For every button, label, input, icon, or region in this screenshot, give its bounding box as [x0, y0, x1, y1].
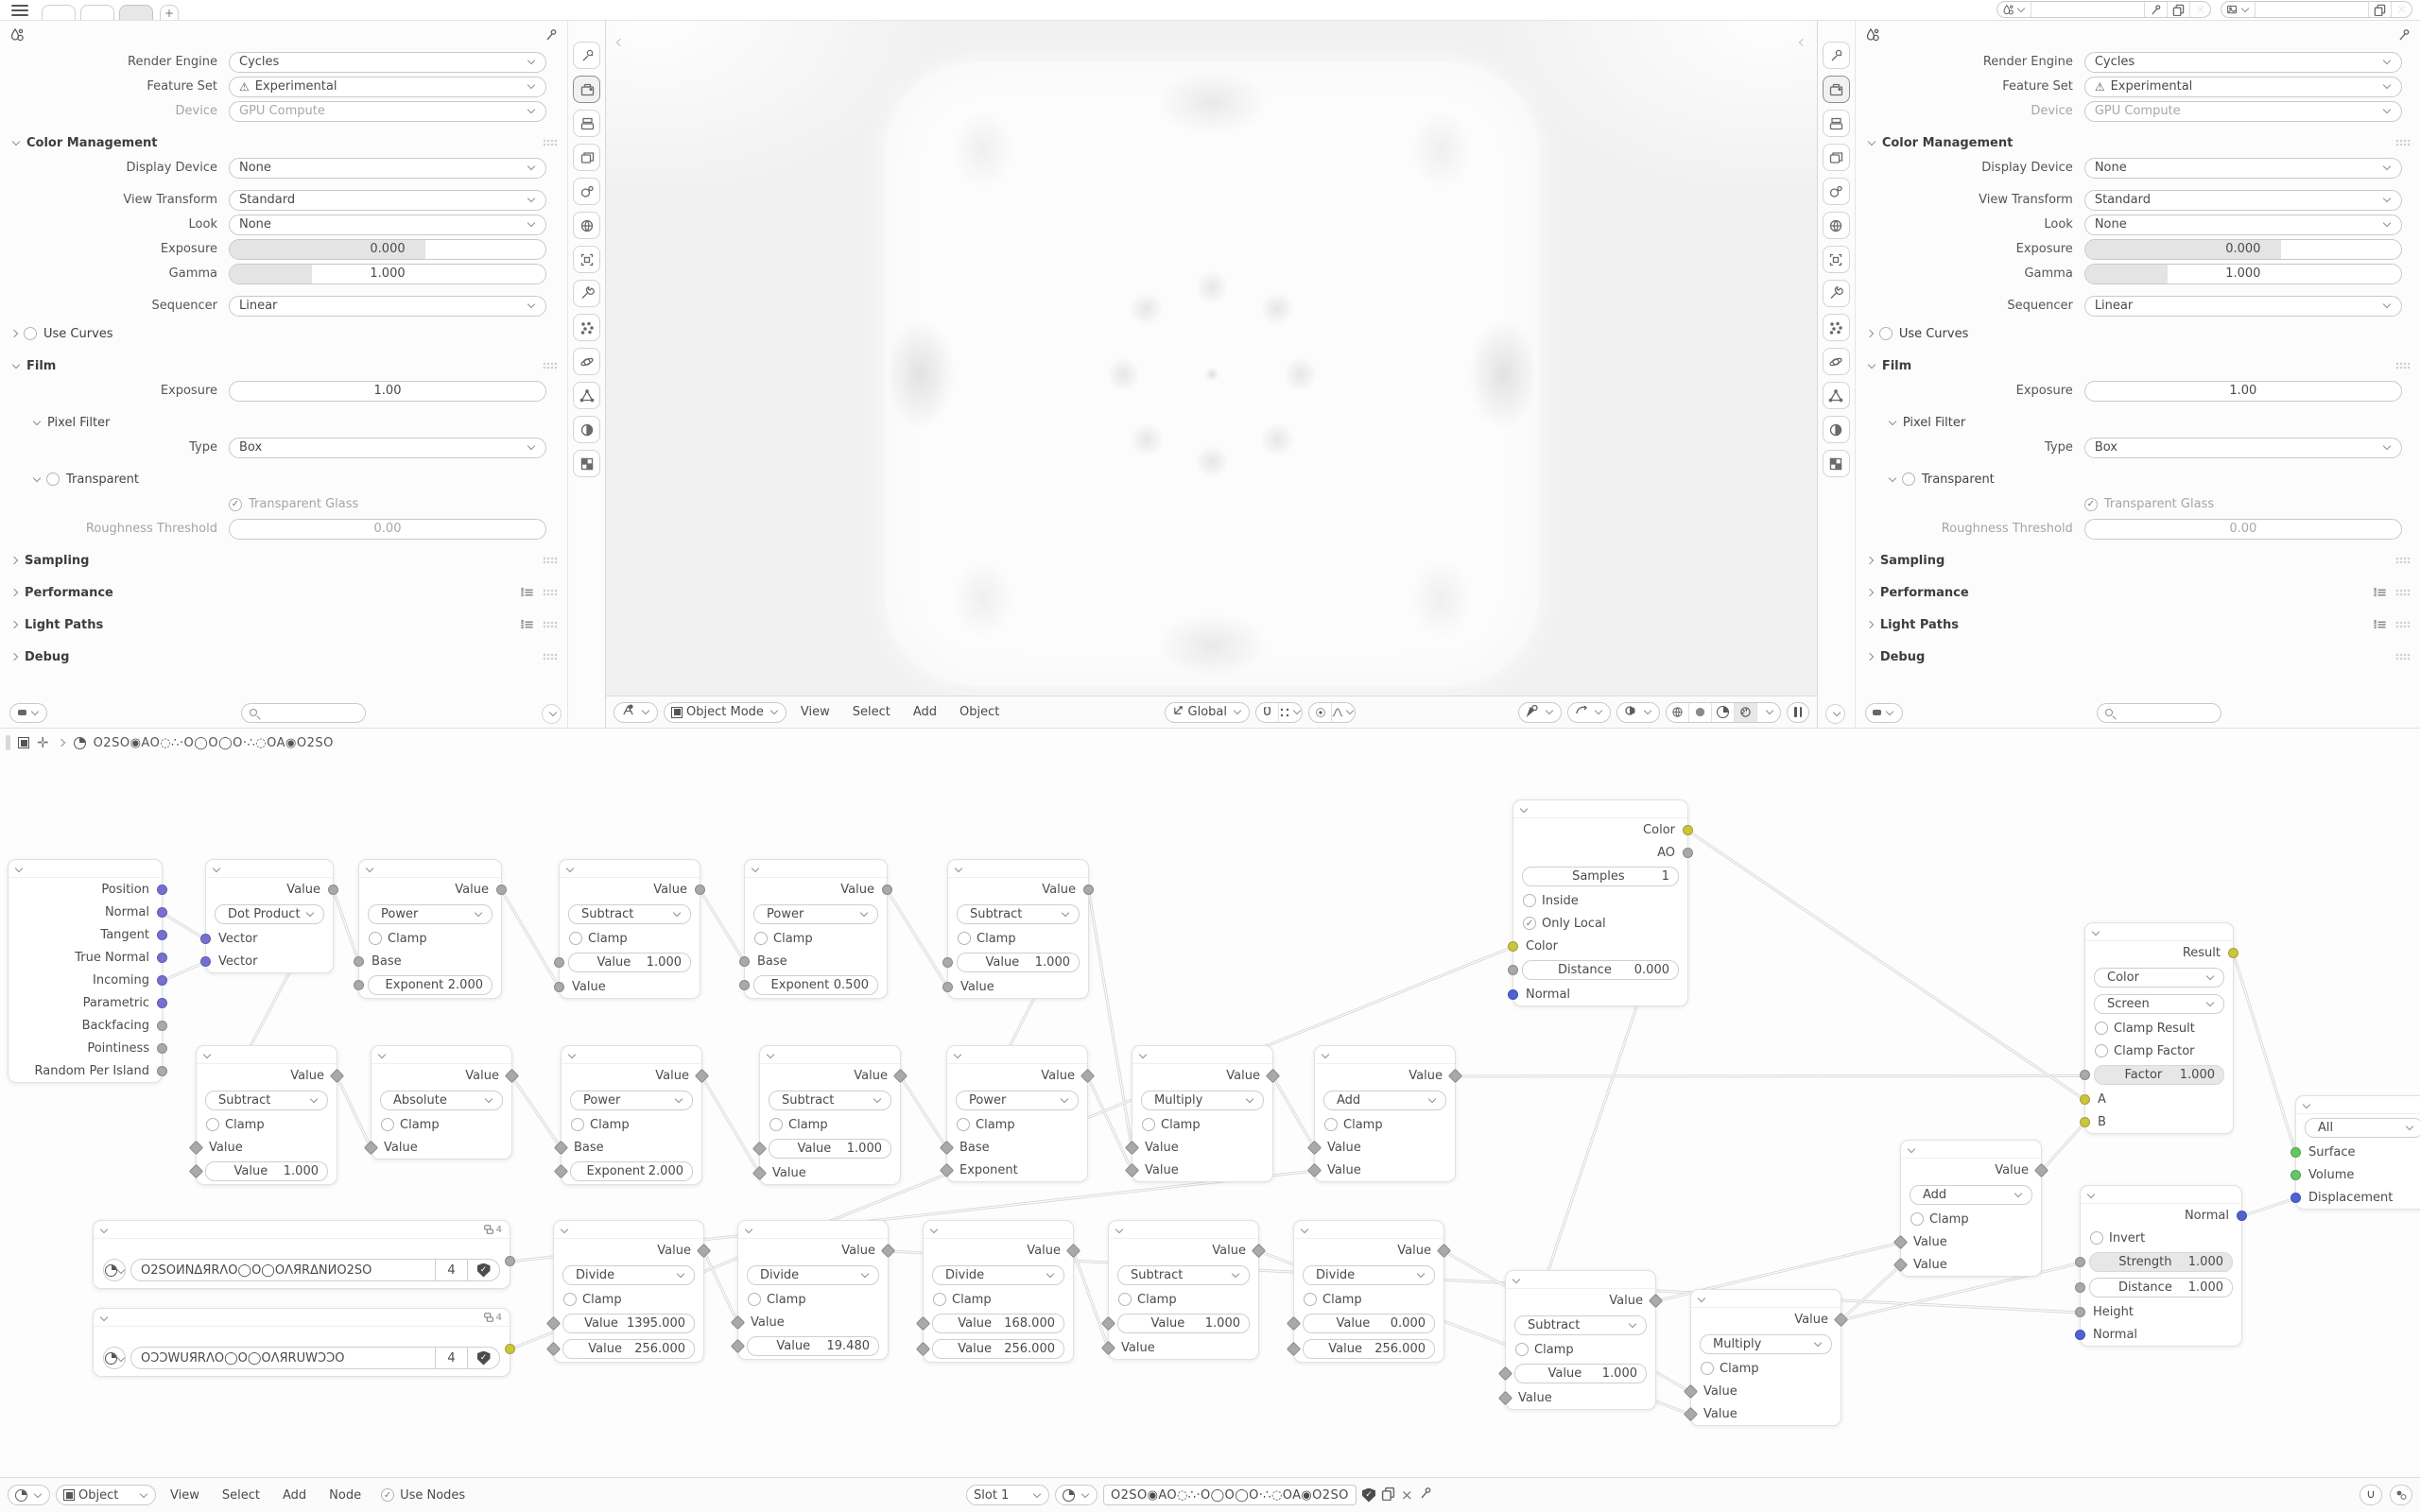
node-socket[interactable]	[697, 1243, 712, 1258]
node-socket[interactable]	[554, 982, 564, 992]
node-enum-select[interactable]: Divide	[1303, 1265, 1435, 1285]
use-curves-checkbox[interactable]	[1879, 327, 1893, 340]
pixel-filter-type-select[interactable]: Box	[229, 438, 546, 458]
node-socket[interactable]	[731, 1314, 746, 1330]
node-socket[interactable]	[1893, 1257, 1909, 1272]
proportional-dot-icon[interactable]	[1309, 703, 1332, 722]
node-socket[interactable]	[2290, 1193, 2301, 1203]
collapse-chevron-icon[interactable]	[2303, 1101, 2310, 1108]
checkbox[interactable]	[2095, 1044, 2108, 1057]
node-socket[interactable]	[739, 956, 750, 967]
properties-editor-icon[interactable]	[1865, 27, 1880, 46]
snapping-icon[interactable]	[2359, 1485, 2382, 1505]
node-enum-select[interactable]: Add	[1910, 1185, 2032, 1205]
expand-button[interactable]	[542, 704, 562, 724]
node-value-field[interactable]: Value168.000	[932, 1314, 1064, 1333]
node-socket[interactable]	[189, 1140, 204, 1155]
properties-tab-scene-icon[interactable]	[1823, 178, 1850, 205]
node-socket[interactable]	[1683, 848, 1693, 858]
sequencer-select[interactable]: Linear	[2084, 296, 2402, 317]
add-workspace-button[interactable]: +	[160, 5, 179, 20]
shader-node-div1[interactable]: ValueDivideClampValue1395.000Value256.00…	[553, 1220, 704, 1363]
node-enum-select[interactable]: Power	[570, 1091, 693, 1110]
shader-node-sub2[interactable]: ValueSubtractClampValue1.000Value	[947, 859, 1089, 999]
node-socket[interactable]	[1287, 1316, 1302, 1332]
node-value-field[interactable]: Value1.000	[1514, 1364, 1647, 1383]
datablock-name-input[interactable]	[2031, 2, 2145, 17]
node-socket[interactable]	[364, 1140, 379, 1155]
node-value-field[interactable]: Value0.000	[1303, 1314, 1435, 1333]
node-socket[interactable]	[1508, 965, 1518, 975]
section-pixel-filter[interactable]: Pixel Filter	[1876, 410, 2420, 435]
transparent-checkbox[interactable]	[1902, 472, 1915, 486]
transparent-glass-checkbox[interactable]	[229, 498, 242, 511]
collapse-chevron-icon[interactable]	[15, 865, 23, 872]
feature-set-select[interactable]: ⚠Experimental	[229, 77, 546, 97]
menu-select[interactable]: Select	[214, 1488, 268, 1503]
close-icon[interactable]: ×	[2392, 2, 2411, 17]
image-browse-button[interactable]	[103, 1259, 126, 1281]
section-performance[interactable]: Performance⁞≡	[1856, 580, 2420, 605]
properties-tab-tool-icon[interactable]	[1823, 42, 1850, 69]
image-texture-node-img2[interactable]: 4OƆƆWUЯRΛO◯O◯OΛЯRUWƆƆO4✓	[93, 1308, 510, 1377]
node-socket[interactable]	[2080, 1117, 2090, 1127]
section-film[interactable]: Film	[0, 353, 567, 378]
shader-node-div2[interactable]: ValueDivideClampValueValue19.480	[737, 1220, 889, 1360]
device-select[interactable]: GPU Compute	[229, 101, 546, 122]
node-enum-select[interactable]: Divide	[932, 1265, 1064, 1285]
node-header[interactable]	[1109, 1221, 1258, 1239]
node-socket[interactable]	[505, 1256, 515, 1266]
image-name-input[interactable]: O2SOИNΔЯRΛO◯O◯OΛЯRΔNИO2SO	[130, 1259, 436, 1281]
render-engine-select[interactable]: Cycles	[2084, 52, 2402, 73]
filter-dropdown-button[interactable]	[9, 703, 47, 723]
node-socket[interactable]	[157, 1021, 167, 1031]
node-socket[interactable]	[2228, 948, 2238, 958]
checkbox[interactable]	[1324, 1118, 1338, 1131]
node-value-field[interactable]: Value1.000	[1117, 1314, 1250, 1333]
properties-tab-material-icon[interactable]	[1823, 416, 1850, 443]
preset-list-icon[interactable]: ⁞≡	[520, 586, 533, 600]
collapse-chevron-icon[interactable]	[745, 1226, 752, 1233]
overlays-icon[interactable]	[2390, 1485, 2412, 1505]
collapse-chevron-icon[interactable]	[1698, 1295, 1705, 1302]
checkbox[interactable]	[1701, 1362, 1714, 1375]
node-enum-select[interactable]: Multiply	[1700, 1334, 1832, 1354]
properties-search-input[interactable]	[2097, 703, 2221, 723]
shader-node-pow2[interactable]: ValuePowerClampBaseExponent0.500	[744, 859, 888, 999]
node-socket[interactable]	[2080, 1070, 2090, 1080]
properties-tab-modifiers-icon[interactable]	[1823, 280, 1850, 307]
node-enum-select[interactable]: Divide	[747, 1265, 879, 1285]
shader-node-dot[interactable]: ValueDot ProductVectorVector	[205, 859, 334, 973]
node-socket[interactable]	[505, 1344, 515, 1354]
collapse-chevron-icon[interactable]	[366, 865, 373, 872]
node-socket[interactable]	[695, 1068, 710, 1083]
node-socket[interactable]	[2290, 1147, 2301, 1158]
copy-icon[interactable]	[1381, 1486, 1395, 1504]
collapse-chevron-icon[interactable]	[1139, 1051, 1147, 1058]
pin-icon[interactable]	[2397, 28, 2411, 45]
checkbox[interactable]	[1523, 894, 1536, 907]
transparent-glass-checkbox[interactable]	[2084, 498, 2098, 511]
collapse-chevron-icon[interactable]	[203, 1051, 211, 1058]
section-sampling[interactable]: Sampling	[0, 548, 567, 573]
checkbox[interactable]	[369, 932, 382, 945]
node-value-field[interactable]: Value1.000	[205, 1161, 328, 1181]
material-name-input[interactable]: O2SO◉AO◌∴·O◯O◯O·∴◌OA◉O2SO	[1103, 1485, 1357, 1505]
properties-editor-icon[interactable]	[9, 27, 25, 46]
node-socket[interactable]	[916, 1342, 931, 1357]
node-enum-select[interactable]: Divide	[562, 1265, 695, 1285]
checkbox[interactable]	[958, 932, 971, 945]
node-socket[interactable]	[157, 975, 167, 986]
node-header[interactable]	[554, 1221, 703, 1239]
collapse-chevron-icon[interactable]	[2087, 1191, 2095, 1198]
node-enum-select[interactable]: All	[2305, 1118, 2420, 1138]
node-header[interactable]: 4	[94, 1309, 510, 1327]
cm-exposure-slider[interactable]: 0.000	[2084, 239, 2402, 260]
solid-shading-icon[interactable]	[1689, 703, 1712, 722]
shader-node-mul2[interactable]: ValueMultiplyClampValueValue	[1690, 1289, 1841, 1426]
checkbox[interactable]	[933, 1293, 946, 1306]
node-socket[interactable]	[554, 957, 564, 968]
node-header[interactable]	[1691, 1290, 1841, 1308]
shader-node-out[interactable]: AllSurfaceVolumeDisplacement	[2295, 1095, 2420, 1210]
node-header[interactable]	[1901, 1141, 2041, 1159]
node-socket[interactable]	[1834, 1312, 1849, 1327]
properties-tab-tool-icon[interactable]	[573, 42, 600, 69]
shader-node-abs1[interactable]: ValueAbsoluteClampValue	[371, 1045, 512, 1160]
node-socket[interactable]	[157, 1043, 167, 1054]
shader-node-editor[interactable]: ✛ O2SO◉AO◌∴·O◯O◯O·∴◌OA◉O2SO PositionNorm…	[0, 728, 2420, 1477]
menu-add[interactable]: Add	[905, 705, 945, 719]
view-transform-select[interactable]: Standard	[2084, 190, 2402, 211]
node-socket[interactable]	[1083, 885, 1094, 895]
node-socket[interactable]	[1101, 1316, 1116, 1332]
node-enum-select[interactable]: Subtract	[1117, 1265, 1250, 1285]
xray-button[interactable]	[1616, 702, 1660, 723]
image-texture-node-img1[interactable]: 4O2SOИNΔЯRΛO◯O◯OΛЯRΔNИO2SO4✓	[93, 1220, 510, 1289]
menu-view[interactable]: View	[792, 705, 838, 719]
section-debug[interactable]: Debug	[1856, 644, 2420, 669]
preset-list-icon[interactable]: ⁞≡	[2373, 586, 2386, 600]
node-value-field[interactable]: Value256.000	[1303, 1339, 1435, 1359]
workspace-tab-2[interactable]	[80, 5, 114, 20]
node-socket[interactable]	[189, 1164, 204, 1179]
node-socket[interactable]	[354, 956, 364, 967]
collapse-chevron-icon[interactable]	[566, 865, 574, 872]
sequencer-select[interactable]: Linear	[229, 296, 546, 317]
shader-node-sub5[interactable]: ValueSubtractClampValue1.000Value	[1108, 1220, 1259, 1360]
node-value-field[interactable]: Exponent0.500	[753, 975, 878, 995]
node-socket[interactable]	[354, 980, 364, 990]
feature-set-select[interactable]: ⚠Experimental	[2084, 77, 2402, 97]
falloff-curve-icon[interactable]	[1332, 703, 1355, 722]
checkbox[interactable]	[769, 1118, 783, 1131]
node-socket[interactable]	[1649, 1293, 1664, 1308]
node-socket[interactable]	[916, 1316, 931, 1332]
node-socket[interactable]	[1508, 989, 1518, 1000]
node-socket[interactable]	[1893, 1234, 1909, 1249]
shader-node-div3[interactable]: ValueDivideClampValue168.000Value256.000	[923, 1220, 1074, 1363]
pin-icon[interactable]	[1419, 1486, 1432, 1503]
material-browse-button[interactable]	[1055, 1485, 1098, 1505]
shader-node-pow1[interactable]: ValuePowerClampBaseExponent2.000	[358, 859, 502, 999]
node-header[interactable]	[760, 1046, 900, 1064]
roughness-threshold-field[interactable]: 0.00	[2084, 519, 2402, 540]
editor-type-button[interactable]	[614, 702, 658, 723]
preset-list-icon[interactable]: ⁞≡	[520, 618, 533, 632]
overlays-button[interactable]	[1567, 702, 1611, 723]
section-film[interactable]: Film	[1856, 353, 2420, 378]
node-socket[interactable]	[739, 980, 750, 990]
checkbox[interactable]	[1304, 1293, 1317, 1306]
node-value-field[interactable]: Strength1.000	[2089, 1252, 2233, 1272]
fake-user-shield-icon[interactable]: ✓	[468, 1259, 500, 1281]
node-value-field[interactable]: Value256.000	[562, 1339, 695, 1359]
section-use-curves[interactable]: Use Curves	[1856, 321, 2420, 346]
collapse-chevron-icon[interactable]	[954, 1051, 961, 1058]
node-socket[interactable]	[695, 885, 705, 895]
node-socket[interactable]	[1498, 1366, 1513, 1382]
node-socket[interactable]	[942, 957, 953, 968]
display-device-select[interactable]: None	[2084, 158, 2402, 179]
collapse-chevron-icon[interactable]	[752, 865, 759, 872]
node-socket[interactable]	[2034, 1162, 2049, 1177]
collapse-chevron-icon[interactable]	[1322, 1051, 1329, 1058]
node-header[interactable]	[738, 1221, 888, 1239]
snap-with-icon[interactable]	[1279, 703, 1302, 722]
properties-tab-texture-icon[interactable]	[573, 450, 600, 477]
properties-tab-material-icon[interactable]	[573, 416, 600, 443]
node-socket[interactable]	[1125, 1140, 1140, 1155]
material-preview-icon[interactable]	[1712, 703, 1735, 722]
node-socket[interactable]	[157, 1066, 167, 1076]
shader-node-div4[interactable]: ValueDivideClampValue0.000Value256.000	[1293, 1220, 1444, 1363]
expand-button[interactable]	[1825, 704, 1845, 724]
properties-tab-object-icon[interactable]	[1823, 246, 1850, 273]
checkbox[interactable]	[2090, 1231, 2103, 1245]
properties-search-input[interactable]	[241, 703, 366, 723]
node-socket[interactable]	[200, 934, 211, 944]
node-value-field[interactable]: Distance1.000	[2089, 1278, 2233, 1297]
pixel-filter-type-select[interactable]: Box	[2084, 438, 2402, 458]
node-header[interactable]	[1132, 1046, 1272, 1064]
pin-icon[interactable]	[2145, 2, 2168, 17]
fake-user-shield-icon[interactable]: ✓	[468, 1347, 500, 1369]
node-socket[interactable]	[2237, 1211, 2247, 1221]
properties-tab-world-icon[interactable]	[573, 212, 600, 239]
pause-render-button[interactable]	[1787, 702, 1809, 723]
node-socket[interactable]	[1448, 1068, 1463, 1083]
checkbox[interactable]	[1523, 917, 1536, 930]
node-socket[interactable]	[2075, 1330, 2085, 1340]
editor-corner-handle[interactable]	[6, 735, 10, 750]
section-performance[interactable]: Performance⁞≡	[0, 580, 567, 605]
node-value-field[interactable]: Samples1	[1522, 867, 1679, 886]
node-socket[interactable]	[496, 885, 507, 895]
section-transparent[interactable]: Transparent	[21, 467, 567, 491]
film-exposure-field[interactable]: 1.00	[2084, 381, 2402, 402]
use-nodes-checkbox[interactable]	[381, 1488, 394, 1502]
node-socket[interactable]	[2075, 1257, 2085, 1267]
node-enum-select[interactable]: Multiply	[1141, 1091, 1264, 1110]
node-enum-select[interactable]: Power	[368, 904, 493, 924]
node-enum-select[interactable]: Add	[1323, 1091, 1446, 1110]
node-value-field[interactable]: Factor1.000	[2094, 1065, 2224, 1085]
node-socket[interactable]	[1683, 825, 1693, 835]
collapse-chevron-icon[interactable]	[955, 865, 962, 872]
shader-node-add1[interactable]: ValueAddClampValueValue	[1314, 1045, 1456, 1182]
node-socket[interactable]	[328, 885, 338, 895]
shader-node-mix[interactable]: ResultColorScreenClamp ResultClamp Facto…	[2084, 922, 2234, 1134]
checkbox[interactable]	[1910, 1212, 1924, 1226]
display-device-select[interactable]: None	[229, 158, 546, 179]
checkbox[interactable]	[1142, 1118, 1155, 1131]
properties-tab-particles-icon[interactable]	[1823, 314, 1850, 341]
transparent-checkbox[interactable]	[46, 472, 60, 486]
checkbox[interactable]	[571, 1118, 584, 1131]
properties-tab-output-icon[interactable]	[1823, 110, 1850, 137]
node-socket[interactable]	[1125, 1162, 1140, 1177]
properties-droplet-icon[interactable]	[1997, 2, 2031, 17]
node-header[interactable]	[947, 1046, 1087, 1064]
node-enum-select[interactable]: Dot Product	[215, 904, 324, 924]
viewport-3d[interactable]: Object Mode View Select Add Object Globa…	[606, 21, 1817, 728]
node-header[interactable]	[1294, 1221, 1443, 1239]
shader-node-sub1[interactable]: ValueSubtractClampValue1.000Value	[559, 859, 700, 999]
properties-tab-modifiers-icon[interactable]	[573, 280, 600, 307]
collapse-chevron-icon[interactable]	[378, 1051, 386, 1058]
section-transparent[interactable]: Transparent	[1876, 467, 2420, 491]
node-socket[interactable]	[546, 1316, 562, 1332]
collapse-chevron-icon[interactable]	[213, 865, 220, 872]
collapse-chevron-icon[interactable]	[561, 1226, 568, 1233]
node-header[interactable]	[2296, 1096, 2420, 1114]
properties-tab-data-icon[interactable]	[573, 382, 600, 409]
look-select[interactable]: None	[2084, 215, 2402, 235]
checkbox[interactable]	[1118, 1293, 1132, 1306]
shader-node-sub4[interactable]: ValueSubtractClampValue1.000Value	[759, 1045, 901, 1185]
node-socket[interactable]	[505, 1068, 520, 1083]
collapse-chevron-icon[interactable]	[1115, 1226, 1123, 1233]
node-header[interactable]	[924, 1221, 1073, 1239]
show-gizmo-button[interactable]	[1518, 702, 1562, 723]
node-socket[interactable]	[554, 1164, 569, 1179]
section-use-curves[interactable]: Use Curves	[0, 321, 567, 346]
node-socket[interactable]	[1287, 1342, 1302, 1357]
menu-select[interactable]: Select	[844, 705, 899, 719]
node-header[interactable]	[1513, 800, 1687, 818]
use-curves-checkbox[interactable]	[24, 327, 37, 340]
shader-node-sub3[interactable]: ValueSubtractClampValueValue1.000	[196, 1045, 337, 1185]
properties-tab-scene-icon[interactable]	[573, 178, 600, 205]
node-header[interactable]	[2081, 1186, 2241, 1204]
node-header[interactable]: 4	[94, 1221, 510, 1239]
properties-tab-render-icon[interactable]	[573, 76, 600, 103]
menu-object[interactable]: Object	[951, 705, 1008, 719]
collapse-chevron-icon[interactable]	[1301, 1226, 1308, 1233]
node-socket[interactable]	[157, 930, 167, 940]
node-socket[interactable]	[940, 1140, 955, 1155]
collapse-chevron-icon[interactable]	[100, 1226, 108, 1233]
node-socket[interactable]	[1437, 1243, 1452, 1258]
gamma-slider[interactable]: 1.000	[2084, 264, 2402, 284]
node-socket[interactable]	[1684, 1406, 1699, 1421]
node-socket[interactable]	[330, 1068, 345, 1083]
section-light-paths[interactable]: Light Paths⁞≡	[1856, 612, 2420, 637]
gamma-slider[interactable]: 1.000	[229, 264, 546, 284]
mode-select[interactable]: Object Mode	[664, 702, 786, 723]
properties-tab-viewlayer-icon[interactable]	[573, 144, 600, 171]
look-select[interactable]: None	[229, 215, 546, 235]
node-socket[interactable]	[157, 953, 167, 963]
node-socket[interactable]	[942, 982, 953, 992]
node-header[interactable]	[372, 1046, 511, 1064]
transform-orientation-select[interactable]: Global	[1165, 702, 1250, 723]
node-socket[interactable]	[1307, 1162, 1322, 1177]
preset-list-icon[interactable]: ⁞≡	[2373, 618, 2386, 632]
section-light-paths[interactable]: Light Paths⁞≡	[0, 612, 567, 637]
node-value-field[interactable]: Exponent2.000	[570, 1161, 693, 1181]
editor-type-button[interactable]	[8, 1485, 50, 1505]
properties-tab-world-icon[interactable]	[1823, 212, 1850, 239]
node-value-field[interactable]: Distance0.000	[1522, 960, 1679, 980]
node-enum-select[interactable]: Screen	[2094, 994, 2224, 1014]
node-socket[interactable]	[752, 1165, 768, 1180]
plus-icon[interactable]: ✛	[37, 734, 49, 751]
node-enum-select[interactable]: Subtract	[1514, 1315, 1647, 1335]
node-socket[interactable]	[200, 956, 211, 967]
properties-tab-texture-icon[interactable]	[1823, 450, 1850, 477]
wireframe-shading-icon[interactable]	[1667, 703, 1689, 722]
close-icon[interactable]: ×	[2190, 2, 2210, 17]
checkbox[interactable]	[569, 932, 582, 945]
node-header[interactable]	[206, 860, 333, 878]
roughness-threshold-field[interactable]: 0.00	[229, 519, 546, 540]
checkbox[interactable]	[748, 1293, 761, 1306]
workspace-tab-1[interactable]	[42, 5, 76, 20]
properties-tab-output-icon[interactable]	[573, 110, 600, 137]
node-header[interactable]	[2085, 923, 2233, 941]
collapse-chevron-icon[interactable]	[1908, 1145, 1915, 1153]
node-enum-select[interactable]: Subtract	[205, 1091, 328, 1110]
properties-tab-viewlayer-icon[interactable]	[1823, 144, 1850, 171]
shader-node-add2[interactable]: ValueAddClampValueValue	[1900, 1140, 2042, 1277]
node-enum-select[interactable]: Subtract	[957, 904, 1080, 924]
checkbox[interactable]	[1515, 1343, 1529, 1356]
node-socket[interactable]	[881, 1243, 896, 1258]
image-browse-button[interactable]	[103, 1347, 126, 1369]
rendered-shading-icon[interactable]	[1735, 703, 1757, 722]
node-socket[interactable]	[157, 907, 167, 918]
node-header[interactable]	[1315, 1046, 1455, 1064]
image-user-count[interactable]: 4	[436, 1347, 468, 1369]
node-socket[interactable]	[546, 1342, 562, 1357]
node-socket[interactable]	[1101, 1340, 1116, 1355]
node-header[interactable]	[359, 860, 501, 878]
collapse-chevron-icon[interactable]	[568, 1051, 576, 1058]
cm-exposure-slider[interactable]: 0.000	[229, 239, 546, 260]
properties-tab-data-icon[interactable]	[1823, 382, 1850, 409]
node-socket[interactable]	[1266, 1068, 1281, 1083]
shader-node-pow4[interactable]: ValuePowerClampBaseExponent	[946, 1045, 1088, 1182]
checkbox[interactable]	[206, 1118, 219, 1131]
section-sampling[interactable]: Sampling	[1856, 548, 2420, 573]
node-header[interactable]	[197, 1046, 337, 1064]
shading-dropdown[interactable]	[1757, 703, 1780, 722]
